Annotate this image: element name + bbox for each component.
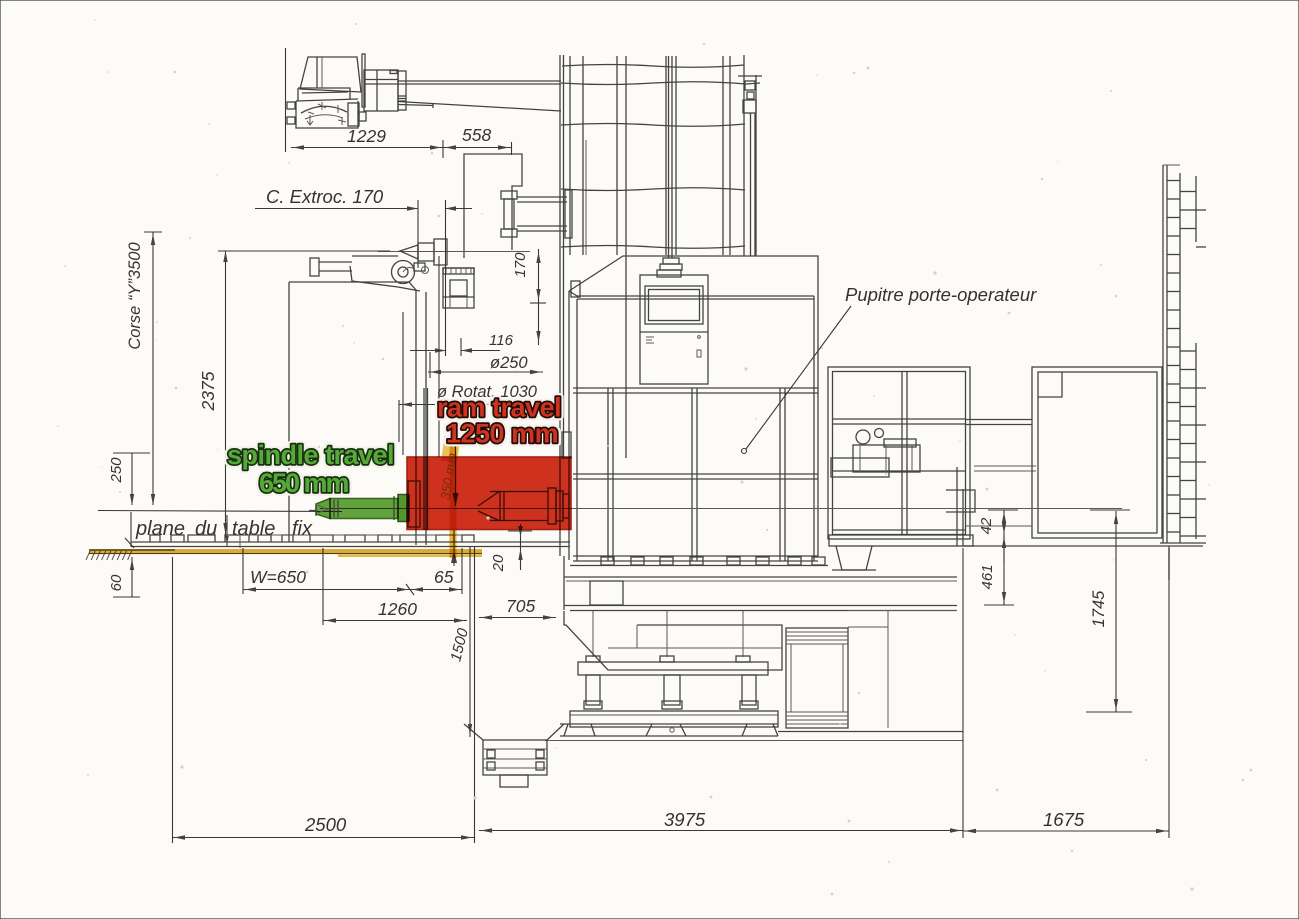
svg-text:1675: 1675 [1043, 809, 1085, 830]
svg-text:2375: 2375 [198, 371, 218, 411]
svg-text:1229: 1229 [347, 126, 386, 146]
svg-text:705: 705 [506, 596, 535, 616]
svg-text:1500: 1500 [447, 626, 472, 663]
svg-text:spindle travel: spindle travel [227, 440, 394, 470]
svg-text:60: 60 [108, 574, 125, 591]
svg-text:Pupitre porte-operateur: Pupitre porte-operateur [845, 284, 1037, 305]
svg-text:table: table [232, 518, 275, 540]
svg-text:170: 170 [512, 252, 529, 278]
svg-text:W=650: W=650 [250, 567, 306, 587]
svg-text:558: 558 [462, 125, 491, 145]
svg-text:116: 116 [489, 332, 514, 349]
svg-text:42: 42 [978, 517, 995, 534]
svg-text:1250 mm: 1250 mm [446, 419, 558, 449]
svg-text:Corse “Y”3500: Corse “Y”3500 [126, 242, 144, 350]
svg-text:461: 461 [979, 564, 996, 589]
svg-text:du: du [195, 518, 217, 540]
svg-text:1260: 1260 [378, 599, 417, 619]
svg-text:3975: 3975 [664, 809, 706, 830]
svg-text:20: 20 [490, 554, 507, 572]
svg-text:plane: plane [135, 518, 185, 540]
svg-text:fix: fix [292, 518, 313, 540]
svg-text:C. Extroc. 170: C. Extroc. 170 [266, 186, 384, 207]
svg-text:2500: 2500 [304, 814, 347, 835]
svg-text:650 mm: 650 mm [259, 468, 349, 498]
svg-text:ø250: ø250 [490, 354, 528, 372]
svg-text:250: 250 [108, 457, 125, 484]
svg-text:65: 65 [434, 567, 454, 587]
svg-text:1745: 1745 [1090, 590, 1108, 628]
